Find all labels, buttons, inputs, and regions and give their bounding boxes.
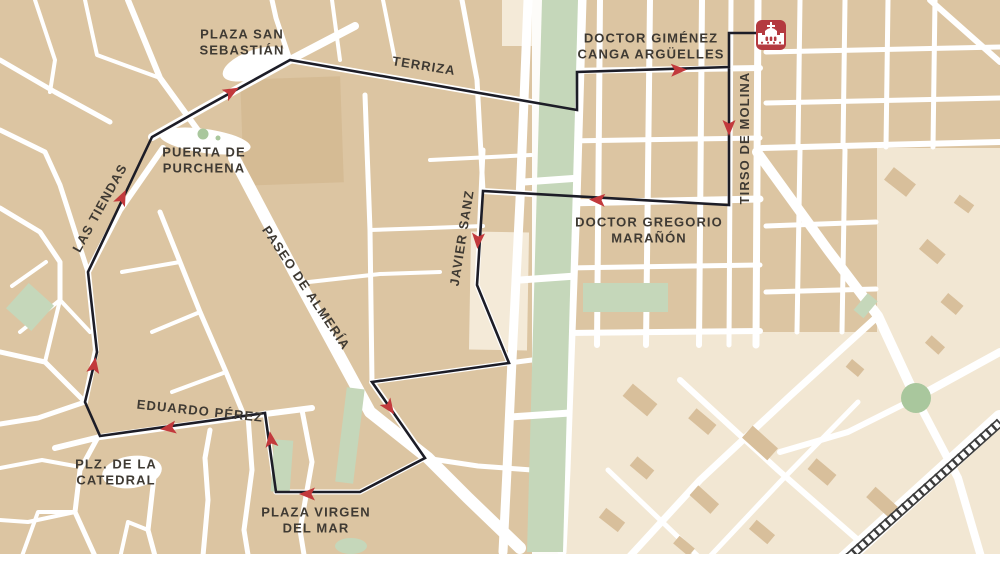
church-marker-icon bbox=[756, 20, 786, 50]
roundabout-green bbox=[901, 383, 931, 413]
bottom-edge bbox=[0, 554, 1000, 567]
route-map: PLAZA SANSEBASTIÁNTERRIZADOCTOR GIMÉNEZC… bbox=[0, 0, 1000, 567]
map-canvas bbox=[0, 0, 1000, 567]
